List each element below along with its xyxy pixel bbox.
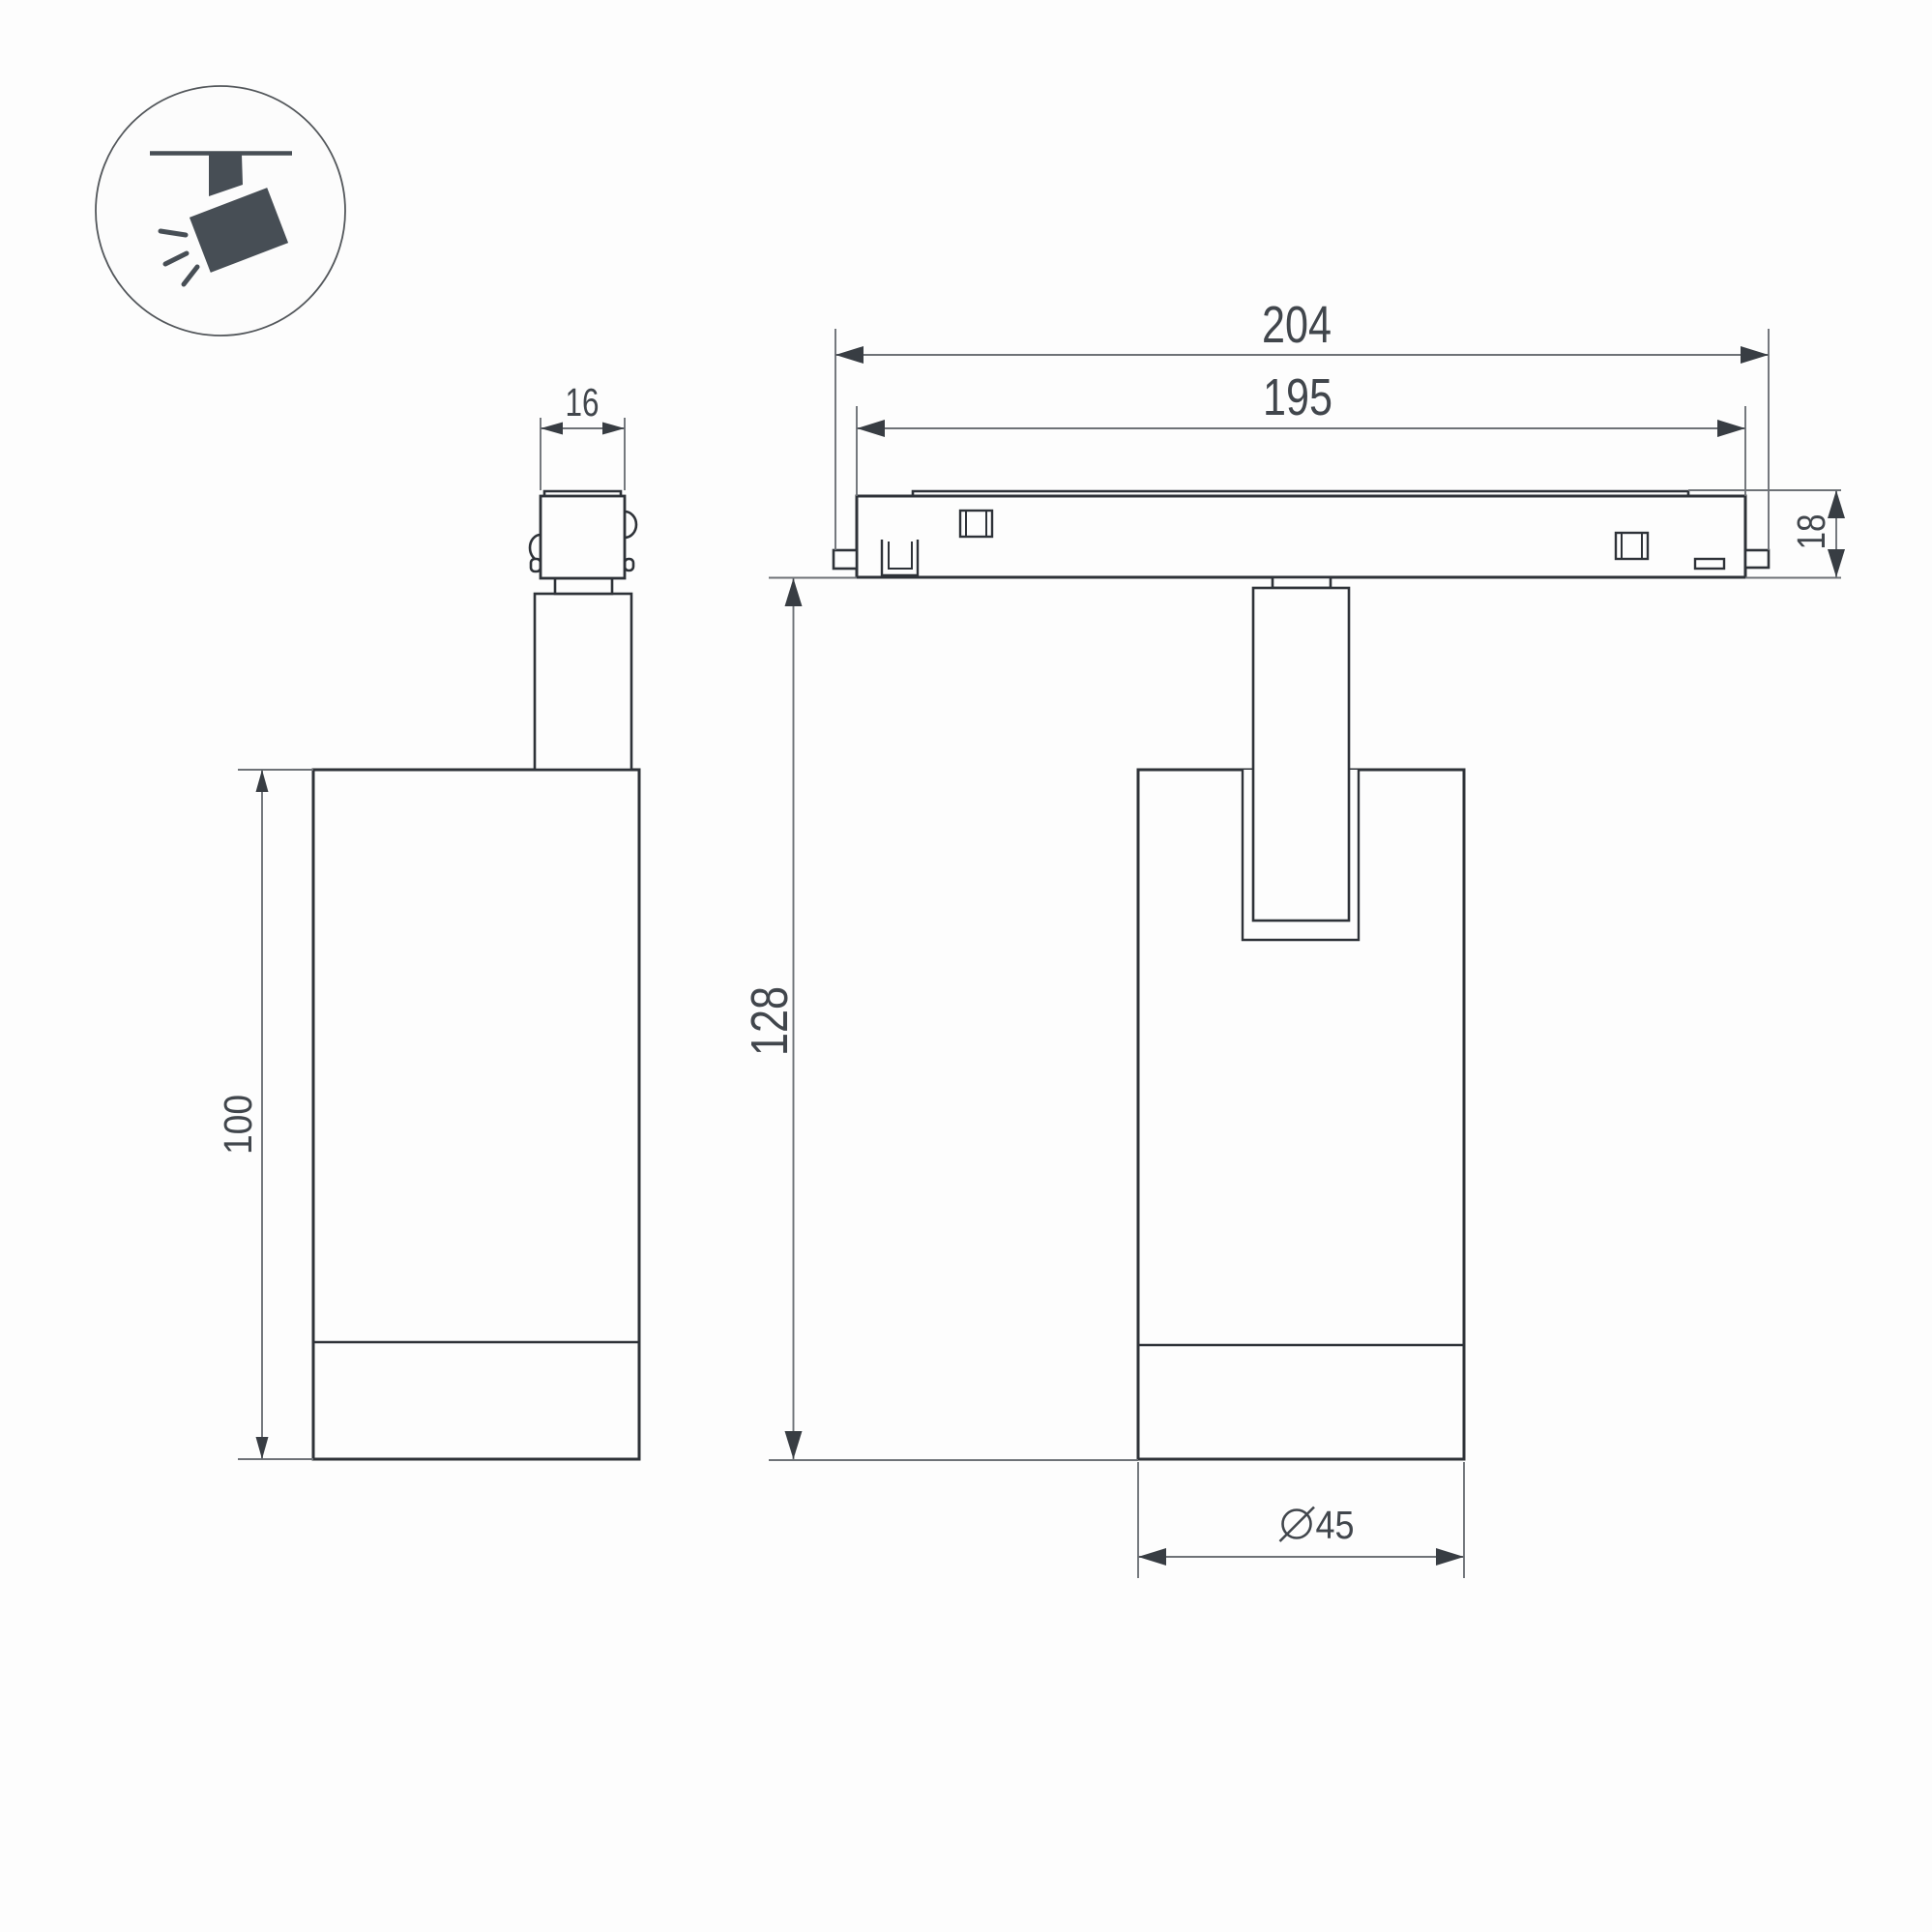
svg-text:204: 204 bbox=[1262, 296, 1332, 354]
svg-text:45: 45 bbox=[1316, 1503, 1355, 1547]
svg-text:16: 16 bbox=[566, 380, 600, 424]
svg-text:128: 128 bbox=[741, 986, 799, 1056]
svg-text:18: 18 bbox=[1789, 514, 1833, 550]
svg-text:100: 100 bbox=[216, 1095, 260, 1155]
svg-text:195: 195 bbox=[1263, 368, 1332, 426]
